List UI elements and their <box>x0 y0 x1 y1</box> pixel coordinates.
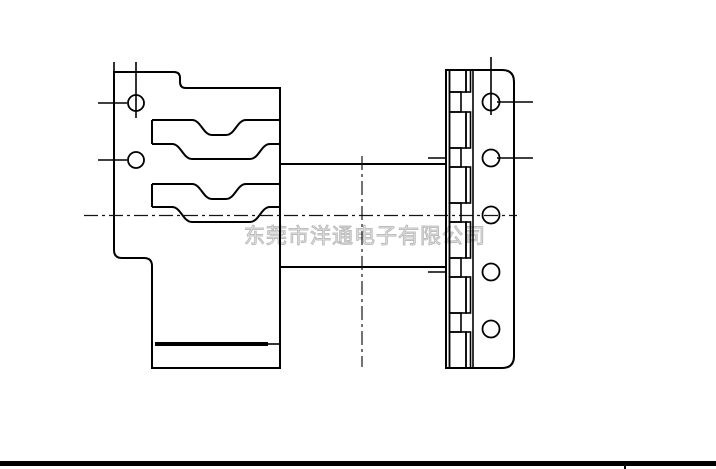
pin-strip-wide-segments <box>450 70 471 368</box>
drawing-canvas: 东莞市洋通电子有限公司 <box>0 0 716 469</box>
plate-hole-4 <box>483 264 500 281</box>
right-flange <box>428 57 533 368</box>
plate-hole-5 <box>483 321 500 338</box>
technical-drawing <box>0 0 716 469</box>
pin-strip-narrow-segments <box>450 92 462 332</box>
winding-slot-upper <box>152 120 280 159</box>
right-flange-outline <box>446 70 514 368</box>
plate-hole-2 <box>483 150 500 167</box>
left-hole-bottom <box>128 152 144 168</box>
center-tube <box>280 156 446 367</box>
bottom-border-bar <box>0 461 716 466</box>
winding-slot-lower <box>152 184 280 222</box>
